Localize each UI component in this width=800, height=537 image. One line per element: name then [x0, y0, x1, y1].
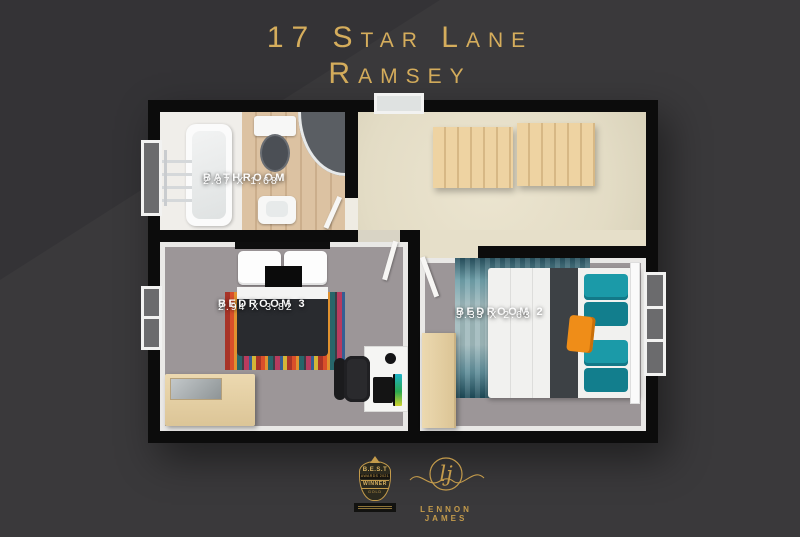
wall-landing-bedroom2 — [478, 246, 658, 258]
room-dimensions: 3.33 X 2.63 — [456, 309, 532, 321]
address-line-2: Ramsey — [0, 56, 800, 92]
toilet — [260, 134, 290, 172]
room-dimensions: 2.94 X 3.82 — [218, 301, 294, 313]
bedroom2-bed — [488, 268, 640, 398]
award-badge-bar — [354, 503, 396, 512]
monitor-screen — [393, 374, 402, 406]
landing-window — [374, 93, 424, 114]
address-line-1: 17 Star Lane — [0, 20, 800, 56]
award-subtitle: AWARDS 2021 — [360, 474, 390, 479]
chair-seat — [344, 356, 370, 402]
lj-monogram-icon: lj — [400, 451, 492, 499]
lj-monogram-text: lj — [439, 462, 453, 486]
desk-lamp — [385, 353, 396, 364]
bedroom2-wardrobe — [422, 333, 456, 428]
duvet-fold — [510, 268, 511, 398]
wall-bedroom3-bedroom2 — [408, 230, 420, 443]
floorplan-page: 17 Star Lane Ramsey — [0, 0, 800, 537]
window-mullion — [647, 306, 663, 309]
laptop — [373, 377, 393, 403]
teal-pillow — [584, 274, 628, 300]
award-crest-icon: B.E.S.T AWARDS 2021 WINNER GOLD — [359, 461, 391, 501]
award-winner: WINNER — [361, 480, 389, 489]
brand-name: LENNON JAMES — [400, 505, 492, 523]
brand-logo: lj LENNON JAMES — [400, 451, 492, 523]
sink-bowl — [266, 201, 288, 217]
staircase-flight-2 — [517, 123, 595, 186]
towel-radiator — [162, 150, 192, 206]
bedroom2-window — [644, 272, 666, 376]
bedroom3-wooden-chest — [165, 374, 255, 426]
bathroom-sink — [258, 196, 296, 224]
orange-cushion — [566, 315, 596, 354]
bed-headboard — [235, 242, 330, 249]
duvet-fold — [532, 268, 533, 398]
window-mullion — [647, 339, 663, 342]
bathroom-window — [141, 140, 162, 216]
floorplan: BATHROOM 2.87 X 1.68 BEDROOM 3 2.94 X 3.… — [148, 100, 658, 443]
staircase-flight-1 — [433, 127, 513, 188]
best-award-badge: B.E.S.T AWARDS 2021 WINNER GOLD — [352, 461, 398, 515]
bed-headboard-frame — [630, 262, 640, 404]
toilet-cistern — [254, 116, 296, 136]
award-title: B.E.S.T — [363, 467, 388, 474]
room-dimensions: 2.87 X 1.68 — [203, 175, 279, 187]
chest-glass-top — [170, 378, 222, 400]
teal-pillow — [584, 368, 628, 392]
bedroom3-window — [141, 286, 162, 350]
window-mullion — [144, 316, 159, 319]
award-level: GOLD — [368, 489, 382, 495]
wall-bathroom-landing — [345, 100, 358, 198]
page-title: 17 Star Lane Ramsey — [0, 20, 800, 92]
office-chair — [334, 352, 372, 406]
bathroom-door-opening — [345, 198, 358, 230]
wall-bathroom-bedroom3 — [148, 230, 358, 242]
